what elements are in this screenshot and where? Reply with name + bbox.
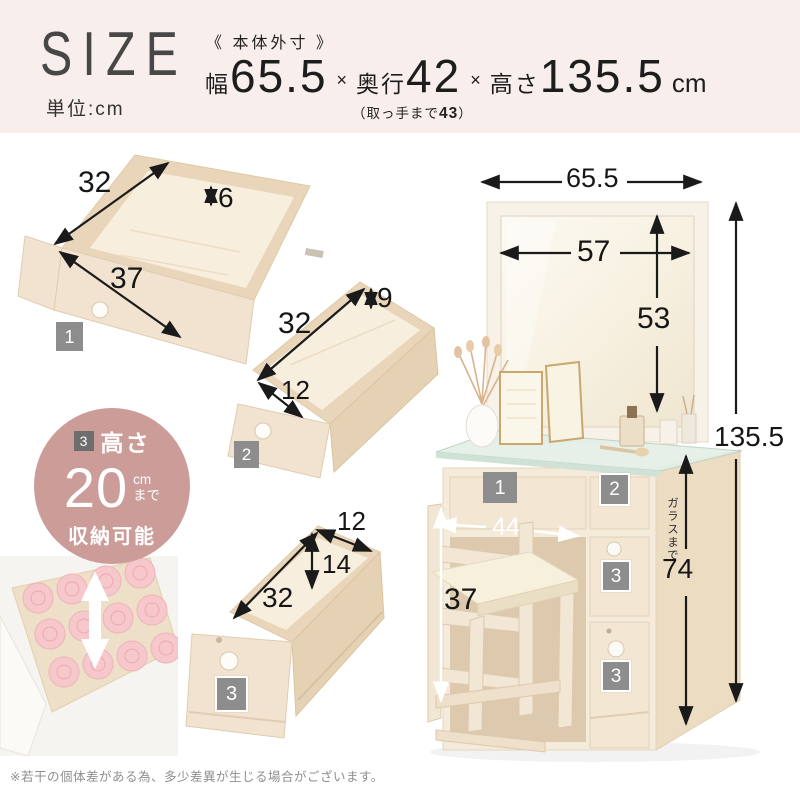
drawer3-inner-height: 14 <box>322 551 351 577</box>
drawer1-depth: 37 <box>110 264 143 294</box>
depth-label: 奥行 <box>356 71 406 97</box>
drawer2-badge: 2 <box>234 441 259 468</box>
page-title: SIZE <box>40 24 188 86</box>
width-label: 幅 <box>205 71 230 97</box>
depth-value: 42 <box>406 50 461 102</box>
callout-value: 20 <box>64 460 128 516</box>
callout-caption: 収納可能 <box>68 520 156 549</box>
size-infographic: SIZE 単位:cm 《 本体外寸 》 幅65.5×奥行42×高さ135.5cm… <box>0 0 800 800</box>
drawer2-width: 12 <box>281 377 310 403</box>
drawer1-rim-height: 6 <box>218 184 234 212</box>
callout-suffix: まで <box>133 488 160 504</box>
vanity-photo <box>428 202 760 762</box>
vanity-stool-height: 37 <box>444 585 477 615</box>
height-label: 高さ <box>490 71 540 97</box>
towel-storage-photo <box>0 556 181 756</box>
handle-note-value: 43 <box>439 105 458 122</box>
vanity-overall-width: 65.5 <box>566 165 619 192</box>
vanity-badge-3-lower: 3 <box>601 660 631 692</box>
height-value: 135.5 <box>540 50 665 102</box>
times-sign: × <box>337 70 348 90</box>
storage-callout: 3 高さ 20 cm まで 収納可能 <box>34 408 190 564</box>
callout-unit: cm <box>133 472 160 488</box>
callout-badge: 3 <box>74 431 94 451</box>
unit-note: 単位:cm <box>46 94 125 121</box>
drawer3-length: 32 <box>262 584 293 612</box>
vanity-overall-height: 135.5 <box>714 423 784 451</box>
drawer2-rim-height: 9 <box>377 284 393 312</box>
drawer1-badge: 1 <box>56 322 83 351</box>
vanity-glass-height: 74 <box>662 555 693 583</box>
vanity-badge-1: 1 <box>483 472 517 503</box>
vanity-mirror-height: 53 <box>637 304 670 334</box>
times-sign: × <box>470 70 481 90</box>
drawer3-width: 12 <box>337 508 366 534</box>
drawer2-length: 32 <box>278 309 311 339</box>
vanity-mirror-width: 57 <box>577 237 610 267</box>
drawer3-badge: 3 <box>215 676 248 712</box>
handle-note: （取っ手まで43） <box>352 102 473 123</box>
vanity-badge-3-upper: 3 <box>601 560 631 592</box>
footnote: ※若干の個体差がある為、多少差異が生じる場合がございます。 <box>10 766 384 785</box>
drawer1-width: 32 <box>78 168 111 198</box>
vanity-badge-2: 2 <box>599 473 630 506</box>
callout-label: 高さ <box>101 424 151 458</box>
width-value: 65.5 <box>230 50 328 102</box>
vanity-knee-width: 44 <box>492 515 520 540</box>
unit-cm: cm <box>672 68 707 98</box>
